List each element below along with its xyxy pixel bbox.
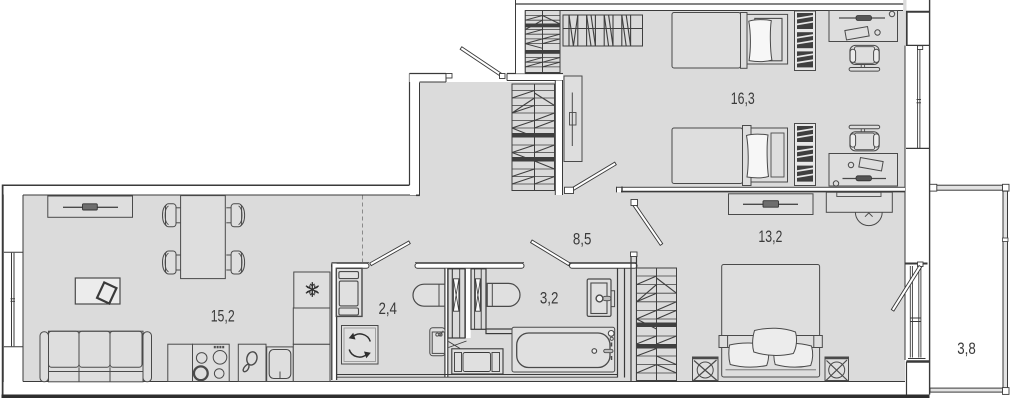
svg-text:8,5: 8,5 [573,231,592,249]
svg-text:3,2: 3,2 [540,290,559,308]
svg-text:16,3: 16,3 [731,90,755,108]
svg-text:3,8: 3,8 [957,340,976,358]
svg-text:2,4: 2,4 [378,300,397,318]
svg-text:13,2: 13,2 [758,228,782,246]
svg-text:15,2: 15,2 [211,308,235,326]
